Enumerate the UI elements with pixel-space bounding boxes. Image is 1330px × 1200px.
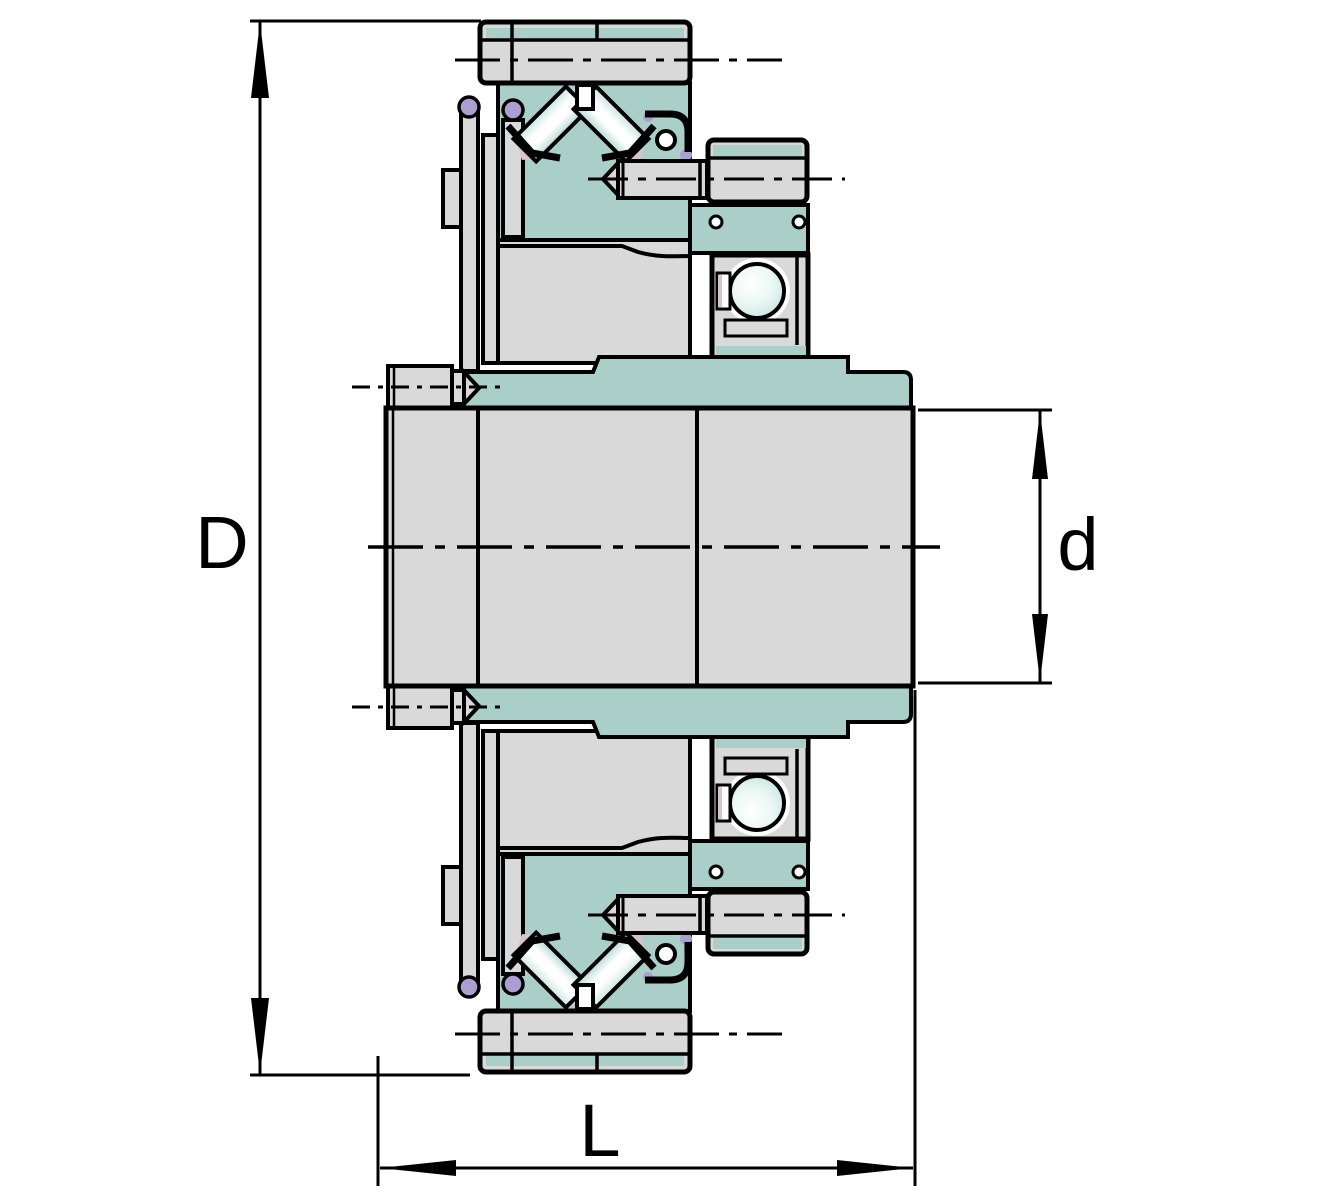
dimension-arrow-left-icon (380, 1160, 456, 1176)
upper-half-assembly (352, 22, 911, 408)
dimension-arrow-up-icon (1032, 411, 1048, 479)
left-plate-inner (483, 135, 498, 363)
left-plate-outer (461, 112, 478, 371)
inner-ring-band (690, 205, 808, 253)
dimension-arrow-down-icon (1032, 614, 1048, 682)
dimension-arrow-down-icon (251, 998, 269, 1074)
outer-ring-teal-strip (486, 28, 684, 39)
outer-diameter-label: D (195, 501, 248, 584)
dimension-bore-diameter: d (918, 410, 1099, 683)
seal-ring (657, 131, 675, 149)
bearing-ball (730, 264, 784, 318)
band-ear-left (710, 216, 722, 228)
left-tab (443, 170, 461, 227)
plate-pin-right (503, 100, 523, 120)
bore-diameter-label: d (1057, 503, 1098, 586)
right-ring-teal-strip (713, 145, 802, 156)
sleeve-nut-block (498, 240, 690, 363)
plate-pin-left (459, 97, 479, 117)
bearing-technical-drawing-page: D d L (0, 0, 1330, 1200)
lower-half-assembly-mirror (352, 686, 911, 1072)
lower-race-block (725, 320, 787, 336)
dimension-arrow-right-icon (837, 1160, 913, 1176)
cage-apex-bar (577, 85, 593, 109)
dimension-arrow-up-icon (251, 22, 269, 98)
overall-length-label: L (579, 1089, 620, 1172)
bearing-cross-section-drawing: D d L (0, 0, 1330, 1200)
band-ear-right (793, 216, 805, 228)
